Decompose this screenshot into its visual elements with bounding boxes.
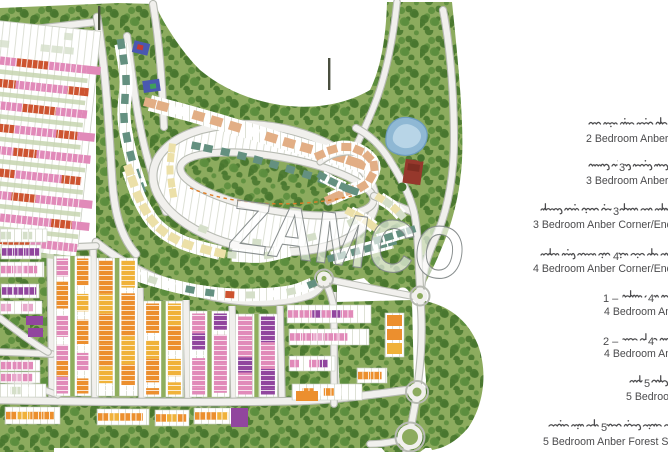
svg-text:3 Bedroom Anber Corner/End Tow: 3 Bedroom Anber Corner/End Townhouses xyxy=(533,219,668,231)
svg-text:2 Bedroom Anber Townhouses: 2 Bedroom Anber Townhouses xyxy=(586,133,668,145)
svg-text:5 Bedroom Anber Villas: 5 Bedroom Anber Villas xyxy=(626,391,668,403)
svg-text:4 Bedroom Anber Corner/End Tow: 4 Bedroom Anber Corner/End Townhouses xyxy=(533,263,668,275)
svg-text:4 Bedroom Anber Grand Villas -: 4 Bedroom Anber Grand Villas - 1 xyxy=(604,306,668,318)
svg-text:1 –: 1 – xyxy=(603,293,619,305)
svg-text:4: 4 xyxy=(648,293,654,305)
svg-text:5: 5 xyxy=(601,422,607,434)
svg-text:2 –: 2 – xyxy=(603,336,619,348)
svg-text:5: 5 xyxy=(644,378,650,390)
svg-text:3: 3 xyxy=(613,206,619,218)
svg-text:4 Bedroom Anber Grand Villas -: 4 Bedroom Anber Grand Villas - 2 xyxy=(604,348,668,360)
svg-text:3 Bedroom Anber Townhouses: 3 Bedroom Anber Townhouses xyxy=(586,175,668,187)
svg-text:4: 4 xyxy=(613,251,619,263)
svg-text:5 Bedroom Anber Forest Signatu: 5 Bedroom Anber Forest Signature Villas xyxy=(543,436,668,448)
svg-text:4: 4 xyxy=(648,336,654,348)
svg-text:3: 3 xyxy=(619,162,625,174)
